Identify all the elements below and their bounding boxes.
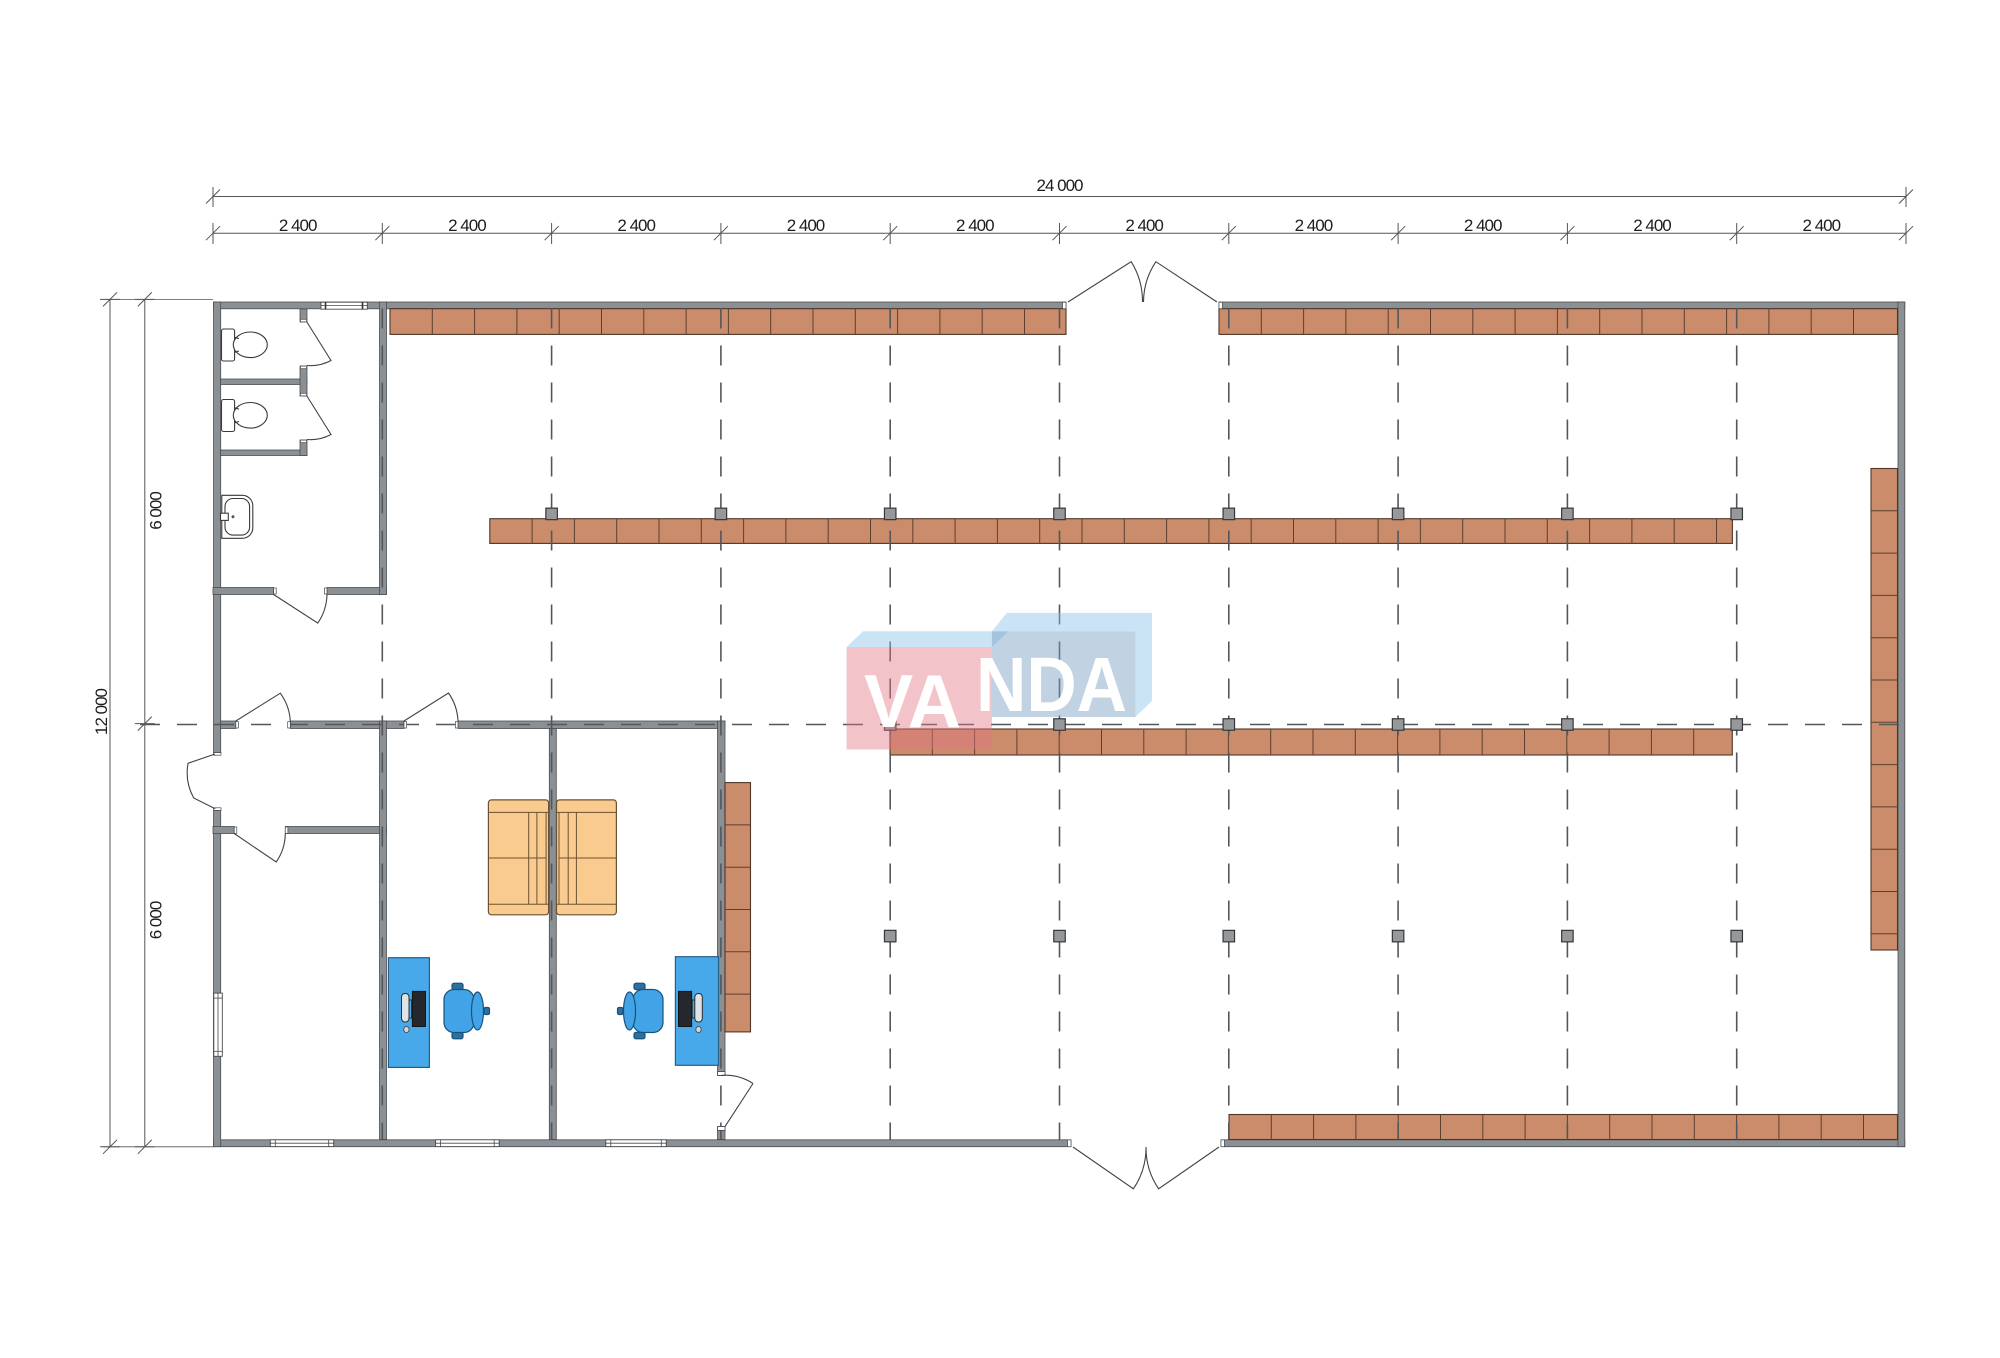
svg-text:2 400: 2 400 — [1464, 216, 1502, 235]
svg-text:2 400: 2 400 — [787, 216, 825, 235]
svg-text:6 000: 6 000 — [147, 492, 166, 530]
svg-text:24 000: 24 000 — [1037, 176, 1084, 195]
svg-text:2 400: 2 400 — [617, 216, 655, 235]
svg-text:2 400: 2 400 — [1125, 216, 1163, 235]
svg-text:2 400: 2 400 — [448, 216, 486, 235]
svg-text:2 400: 2 400 — [956, 216, 994, 235]
svg-text:VA: VA — [864, 659, 961, 743]
svg-text:12 000: 12 000 — [92, 688, 111, 735]
svg-text:2 400: 2 400 — [1803, 216, 1841, 235]
svg-text:2 400: 2 400 — [1633, 216, 1671, 235]
svg-text:6 000: 6 000 — [147, 901, 166, 939]
svg-text:2 400: 2 400 — [1295, 216, 1333, 235]
svg-text:NDA: NDA — [976, 642, 1127, 728]
svg-text:2 400: 2 400 — [279, 216, 317, 235]
